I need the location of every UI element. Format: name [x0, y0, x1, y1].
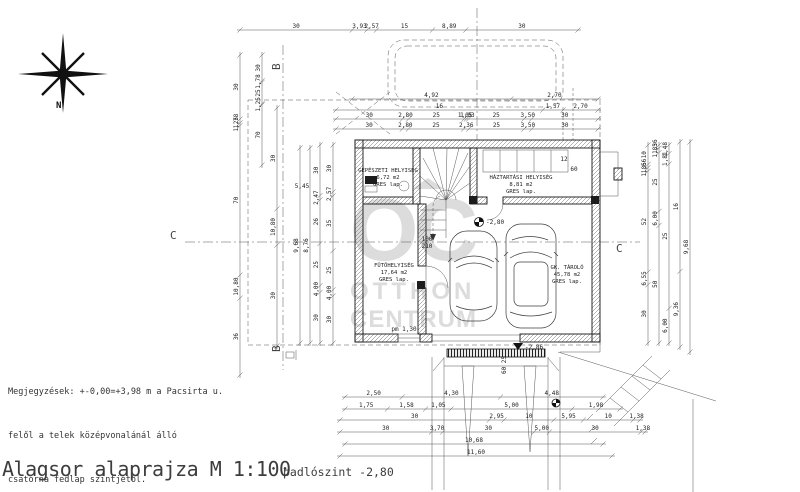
room-area: 45,78 m2 — [554, 272, 581, 278]
dimension-value: 6,00 — [652, 211, 659, 226]
annotation-label: 100 — [422, 236, 433, 243]
dimension-value: 10 — [525, 413, 533, 420]
dimension-chain: 302,95105,95101,38 — [337, 413, 644, 422]
dimension-chain: 9,68 — [683, 139, 693, 355]
annotation-label: 210 — [422, 243, 433, 250]
note-line: felől a telek középvonalánál álló — [8, 429, 289, 444]
dimension-value: 2,36 — [459, 122, 474, 129]
dimension-value: 30 — [313, 166, 320, 174]
note-line: Megjegyzések: +-0,00=+3,98 m a Pacsirta … — [8, 385, 289, 400]
dimension-value: 10,80 — [270, 218, 277, 236]
doors — [426, 204, 503, 288]
dimension-value: 16 — [673, 203, 680, 211]
compass-rose-icon: N — [18, 33, 108, 113]
dimension-chain: 2,504,304,48 — [342, 390, 606, 399]
dimension-value: 8,76 — [303, 238, 310, 253]
dimension-chain: 161,572,70 — [333, 103, 601, 112]
dimension-value: 30 — [292, 23, 300, 30]
dimension-value: 1,85 — [652, 143, 659, 158]
dimension-value: 1,38 — [636, 425, 651, 432]
room-floor: GRES lap. — [552, 279, 582, 285]
dimension-chain: 1,361,85256,0050 — [652, 139, 662, 346]
dimension-value: 3,50 — [521, 122, 536, 129]
dimension-value: 4,48 — [545, 390, 560, 397]
dimension-value: 70 — [255, 131, 262, 139]
floor-level-label: padlószint -2,80 — [283, 465, 394, 479]
dimension-value: 10 — [641, 151, 648, 159]
rc-column — [469, 196, 477, 204]
room-floor: GRES lap. — [379, 277, 409, 283]
room-name: HÁZTARTÁSI HELYISÉG — [490, 173, 553, 181]
dimension-value: 1,85 — [641, 162, 648, 177]
section-b-bottom-label: B — [270, 345, 283, 352]
dimension-value: 1,25 — [255, 97, 262, 112]
room-area: 6,72 m2 — [376, 175, 399, 181]
dimension-chain: 10,68 — [342, 437, 606, 446]
dimension-chain: 301,781,257010,8036 — [233, 52, 243, 378]
dimension-value: 2,95 — [489, 413, 504, 420]
car-left — [448, 231, 499, 321]
dimension-value: 2,50 — [366, 390, 381, 397]
drawing-sheet: OC OTTHON CENTRUM N B B — [0, 0, 800, 492]
dimension-value: 1,38 — [629, 413, 644, 420]
dimension-value: 1,05 — [431, 402, 446, 409]
dimension-value: 15 — [401, 23, 409, 30]
dimension-value: 2,80 — [398, 112, 413, 119]
rc-column — [417, 281, 425, 289]
dimension-chain: 302,80252,36253,5030 — [333, 122, 601, 131]
annotation-label: 60 25 — [501, 356, 508, 374]
dimension-value: 52 — [641, 218, 648, 226]
dimension-value: 5,95 — [561, 413, 576, 420]
dimension-chain: 1,481,81256,00 — [662, 142, 672, 346]
dimension-value: 25 — [255, 89, 262, 97]
dimension-value: 25 — [326, 266, 333, 274]
dimension-value: 30 — [561, 112, 569, 119]
dimension-value: 6,55 — [641, 271, 648, 286]
annotation-label: 60 — [570, 166, 578, 173]
dimension-value: 30 — [270, 292, 277, 300]
section-c-right-label: C — [616, 242, 623, 255]
dimension-value: 4,00 — [326, 285, 333, 300]
dimension-value: 1,98 — [589, 402, 604, 409]
dimension-value: 25 — [313, 261, 320, 269]
dimension-value: 1,75 — [359, 402, 374, 409]
dimension-value: 70 — [233, 196, 240, 204]
dimension-value: 10,68 — [465, 437, 483, 444]
benchmark-icon — [475, 218, 484, 227]
dimension-value: 1,58 — [399, 402, 414, 409]
dimension-value: 30 — [326, 316, 333, 324]
dimension-value: 30 — [313, 314, 320, 322]
dimension-value: 4,30 — [444, 390, 459, 397]
dimension-value: 16 — [436, 103, 444, 110]
dimension-chain: 302,4726254,0030 — [313, 142, 323, 346]
dimension-value: 3,70 — [430, 425, 445, 432]
annotation-label: 12 — [560, 156, 568, 163]
annotation-label: pm 1,30 — [391, 326, 417, 333]
staircase — [420, 148, 470, 241]
room-name: GÉPÉSZETI HELYISÉG — [358, 166, 418, 174]
car-right — [504, 224, 558, 328]
dimension-value: 9,68 — [293, 238, 300, 253]
cabinet-row — [483, 150, 568, 172]
dimension-chain: 302,5735254,0030 — [326, 142, 336, 346]
drawing-title: Alagsor alaprajza M 1:100 — [2, 457, 291, 481]
dimension-value: 1,25 — [233, 117, 240, 132]
dimension-value: 30 — [382, 425, 390, 432]
dimension-chain: 3010,8030 — [270, 105, 280, 349]
dimension-value: 2,70 — [547, 92, 562, 99]
dimension-value: 30 — [561, 122, 569, 129]
dimension-value: 50 — [652, 280, 659, 288]
dimension-value: 30 — [485, 425, 493, 432]
garage-floor-level: -2,80 — [486, 219, 504, 226]
room-area: 8,81 m2 — [509, 182, 532, 188]
dimension-value: 3,50 — [521, 112, 536, 119]
dimension-value: 11,60 — [467, 449, 485, 456]
dimension-value: 5,00 — [504, 402, 519, 409]
dimension-value: 2,57 — [326, 186, 333, 201]
dimension-value: 1,03 — [460, 112, 475, 119]
dimension-value: 1,81 — [662, 151, 669, 166]
section-b-top-label: B — [270, 63, 283, 70]
dimension-chain: 1,751,581,055,001,98 — [342, 402, 623, 411]
dimension-chain: 8,76 — [303, 145, 313, 346]
section-c-left-label: C — [170, 229, 177, 242]
dimension-value: 2,57 — [364, 23, 379, 30]
dimension-chain: 301,78251,2570 — [255, 52, 265, 168]
section-lines: B B C C — [170, 8, 640, 370]
ramp-top-level: -2,86 — [525, 344, 543, 351]
dimension-value: 6,00 — [662, 318, 669, 333]
dimension-value: 25 — [433, 112, 441, 119]
dimension-chain: 169,36 — [673, 139, 683, 350]
dimension-value: 25 — [652, 178, 659, 186]
dimension-layer: 303,932,57158,89304,922,70161,572,70302,… — [233, 23, 693, 458]
dimension-value: 8,89 — [442, 23, 457, 30]
room-floor: GRES lap. — [373, 182, 403, 188]
room-name: GK. TÁROLÓ — [550, 264, 583, 271]
dimension-value: 30 — [270, 154, 277, 162]
dimension-value: 9,36 — [673, 302, 680, 317]
dimension-value: 30 — [233, 83, 240, 91]
dimension-chain: 303,70305,00301,38 — [337, 425, 651, 434]
dimension-value: 1,78 — [255, 74, 262, 89]
dimension-chain: 101,661,85526,5530 — [641, 142, 651, 346]
dimension-value: 25 — [493, 112, 501, 119]
room-area: 17,64 m2 — [381, 270, 408, 276]
dimension-value: 10,80 — [233, 277, 240, 295]
dimension-value: 30 — [641, 310, 648, 318]
annotation-label: 5,45 — [295, 183, 310, 190]
dimension-chain: 302,80251,051,03253,5030 — [333, 112, 601, 121]
compass-north-label: N — [56, 101, 61, 111]
dimension-value: 30 — [591, 425, 599, 432]
dimension-value: 30 — [366, 112, 374, 119]
right-bay — [600, 152, 622, 196]
dimension-value: 4,92 — [424, 92, 439, 99]
dimension-value: 30 — [326, 164, 333, 172]
dimension-value: 30 — [255, 64, 262, 72]
dimension-value: 25 — [493, 122, 501, 129]
dimension-chain: 9,68 — [293, 145, 303, 346]
dimension-value: 36 — [233, 333, 240, 341]
room-name: FŰTŐHELYISÉG — [374, 261, 414, 269]
dimension-value: 5,00 — [535, 425, 550, 432]
dimension-value: 26 — [313, 218, 320, 226]
benchmark-icon — [552, 399, 560, 407]
dimension-value: 25 — [432, 122, 440, 129]
dimension-value: 25 — [662, 232, 669, 240]
dimension-value: 2,70 — [573, 103, 588, 110]
dimension-value: 9,68 — [683, 239, 690, 254]
room-floor: GRES lap. — [506, 189, 536, 195]
dimension-value: 4,00 — [313, 281, 320, 296]
dimension-value: 30 — [366, 122, 374, 129]
dimension-value: 35 — [326, 219, 333, 227]
dimension-chain: 303,932,57158,8930 — [237, 23, 581, 32]
dimension-value: 10 — [605, 413, 613, 420]
dimension-value: 1,57 — [546, 103, 561, 110]
dimension-value: 2,47 — [313, 190, 320, 205]
dimension-value: 2,80 — [398, 122, 413, 129]
dimension-value: 30 — [518, 23, 526, 30]
dimension-value: 30 — [411, 413, 419, 420]
dimension-chain: 11,60 — [337, 449, 615, 458]
rc-column — [591, 196, 599, 204]
